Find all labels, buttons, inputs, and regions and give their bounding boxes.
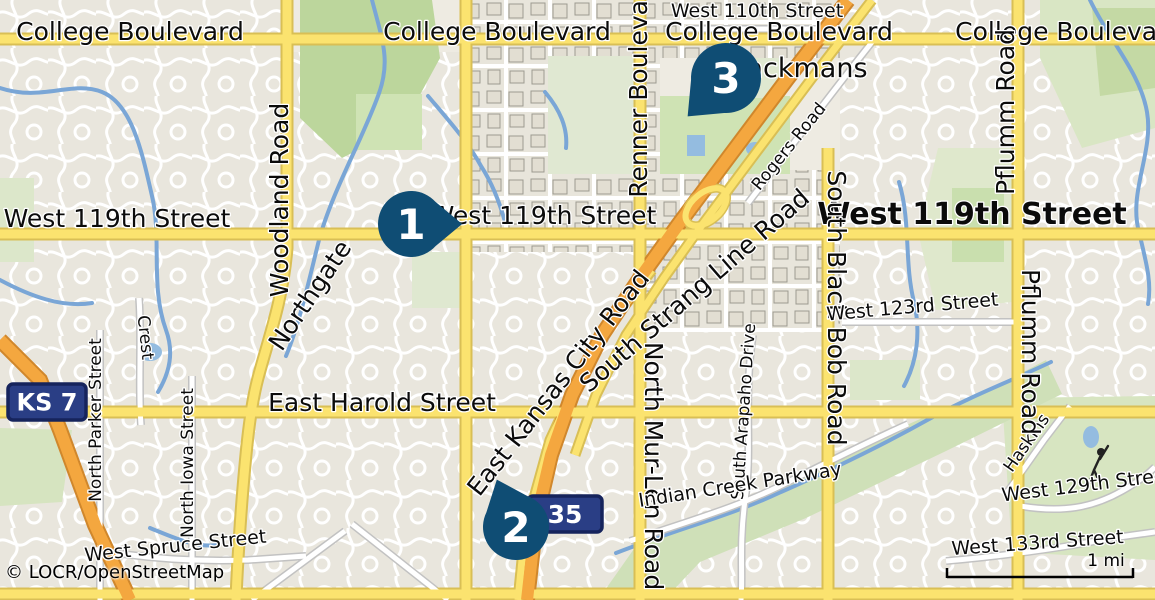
west-119th-street-center-label: West 119th Street	[430, 201, 657, 230]
east-harold-street-label: East Harold Street	[268, 388, 496, 417]
pflumm-road-north-label: Pflumm Road	[991, 29, 1020, 195]
renner-boulevard-label: Renner Boulevard	[624, 0, 653, 198]
college-boulevard-west-label: College Boulevard	[16, 17, 244, 46]
college-boulevard-center-label: College Boulevard	[383, 17, 611, 46]
marker-number: 2	[501, 503, 530, 552]
scale-label: 1 mi	[1086, 551, 1126, 571]
west-119th-street-west-label: West 119th Street	[4, 204, 231, 233]
ackmans-place-label: ackmans	[746, 53, 867, 84]
west-119th-street-east-label: West 119th Street	[817, 197, 1127, 232]
north-parker-street-label: North Parker Street	[86, 338, 106, 502]
marker-number: 3	[711, 54, 740, 103]
map-attribution: © LOCR/OpenStreetMap	[5, 562, 224, 583]
college-boulevard-east2-label: College Boulevard	[955, 17, 1155, 46]
ks-7-shield: KS 7	[8, 384, 86, 420]
i-35-shield-text: 35	[548, 500, 583, 529]
pflumm-road-south-label: Pflumm Road	[1016, 269, 1045, 435]
map-image: College BoulevardCollege BoulevardWest 1…	[0, 0, 1155, 600]
woodland-road-label: Woodland Road	[265, 103, 294, 297]
north-mur-len-road-label: North Mur-Len Road	[639, 342, 668, 590]
ks-7-shield-text: KS 7	[17, 389, 78, 417]
college-boulevard-east1-label: College Boulevard	[665, 17, 893, 46]
north-iowa-street-label: North Iowa Street	[178, 388, 198, 538]
map-canvas[interactable]: College BoulevardCollege BoulevardWest 1…	[0, 0, 1155, 600]
marker-number: 1	[396, 200, 425, 249]
